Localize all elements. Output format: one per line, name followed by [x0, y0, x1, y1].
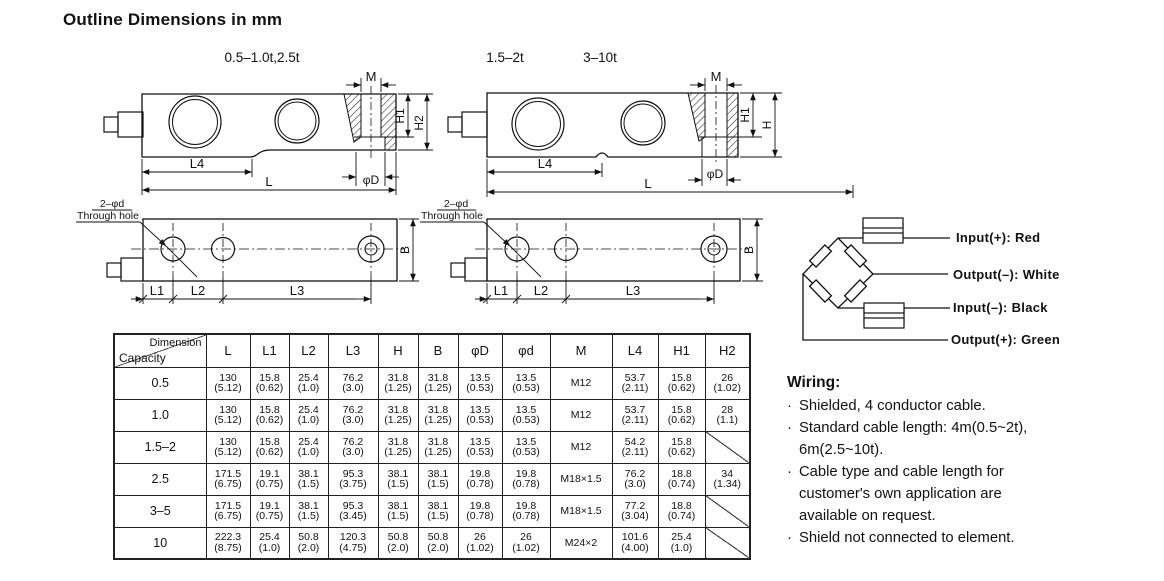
thread-cell: M18×1.5: [550, 495, 612, 527]
wheatstone-diamond: [803, 238, 873, 308]
dim-cell: 31.8(1.25): [378, 431, 418, 463]
dim-cell: 18.8(0.74): [658, 463, 705, 495]
wire-label-input-pos: Input(+): Red: [956, 230, 1040, 245]
dim-label-l2: L2: [534, 283, 548, 298]
dim-cell: 26(1.02): [502, 527, 550, 559]
strain-gauge: [845, 245, 867, 267]
col-header-H: H: [378, 334, 418, 367]
bullet-dot: ·: [787, 417, 799, 439]
dim-cell-na: [705, 527, 750, 559]
dim-cell: 76.2(3.0): [328, 367, 378, 399]
dim-label-l: L: [644, 176, 651, 191]
flexure-hole: [275, 99, 319, 143]
dim-cell: 31.8(1.25): [418, 431, 458, 463]
callout-2-phid: 2–φd: [444, 198, 468, 210]
cable-tip: [451, 263, 465, 277]
dim-label-l1: L1: [494, 283, 508, 298]
cable-tip: [448, 117, 462, 132]
dim-label-l: L: [265, 174, 272, 189]
dim-label-h1: H1: [393, 108, 407, 124]
variant-label-large: 3–10t: [583, 50, 617, 65]
dim-cell: 15.8(0.62): [658, 367, 705, 399]
dim-cell: 50.8(2.0): [289, 527, 328, 559]
wiring-note: ·Cable type and cable length for custome…: [787, 461, 1045, 527]
flexure-hole: [169, 96, 221, 148]
col-header-L3: L3: [328, 334, 378, 367]
dim-cell: 19.8(0.78): [458, 463, 502, 495]
dim-cell: 19.8(0.78): [502, 495, 550, 527]
dim-label-l2: L2: [191, 283, 205, 298]
dim-label-b: B: [742, 246, 756, 254]
bridge-circuit: Input(+): Red Output(–): White Input(–):…: [803, 218, 1060, 347]
dim-cell: 222.3(8.75): [206, 527, 250, 559]
callout-through-hole: Through hole: [77, 210, 139, 222]
col-header-H1: H1: [658, 334, 705, 367]
datasheet-page: Outline Dimensions in mm 0.5–1.0t,2.5t 1…: [0, 0, 1164, 581]
callout-2-phid: 2–φd: [100, 198, 124, 210]
thread-cell: M18×1.5: [550, 463, 612, 495]
wiring-notes: Wiring: ·Shielded, 4 conductor cable. ·S…: [787, 374, 1045, 549]
dim-cell: 25.4(1.0): [289, 367, 328, 399]
section-hatch: [727, 93, 738, 157]
dim-cell: 38.1(1.5): [378, 463, 418, 495]
bullet-dot: ·: [787, 395, 799, 417]
dim-label-m: M: [711, 69, 722, 84]
dim-label-m: M: [366, 69, 377, 84]
dim-cell: 25.4(1.0): [289, 431, 328, 463]
thread-cell: M12: [550, 399, 612, 431]
cable-connector: [462, 112, 487, 137]
dim-cell: 31.8(1.25): [418, 367, 458, 399]
bullet-dot: ·: [787, 527, 799, 549]
dim-cell: 54.2(2.11): [612, 431, 658, 463]
top-view-large: 2–φd Through hole B L1 L2: [420, 198, 763, 304]
dim-cell: 13.5(0.53): [502, 399, 550, 431]
dim-cell: 13.5(0.53): [458, 431, 502, 463]
thread-cell: M12: [550, 431, 612, 463]
dim-cell: 38.1(1.5): [418, 495, 458, 527]
dim-cell: 34(1.34): [705, 463, 750, 495]
dim-label-phid: φD: [363, 173, 380, 187]
cable-tip: [104, 117, 118, 132]
table-header-row: Dimension Capacity L L1 L2 L3 H B φD φd …: [114, 334, 750, 367]
dim-cell: 130(5.12): [206, 367, 250, 399]
load-cell-body-top: [487, 219, 740, 281]
capacity-cell: 3–5: [114, 495, 206, 527]
col-header-L4: L4: [612, 334, 658, 367]
col-header-L1: L1: [250, 334, 289, 367]
dim-label-l1: L1: [150, 283, 164, 298]
dim-cell: 130(5.12): [206, 399, 250, 431]
col-header-L: L: [206, 334, 250, 367]
cable-connector: [118, 112, 143, 137]
dim-cell: 31.8(1.25): [418, 399, 458, 431]
dim-cell: 130(5.12): [206, 431, 250, 463]
dim-cell: 19.8(0.78): [458, 495, 502, 527]
dim-cell: 31.8(1.25): [378, 367, 418, 399]
capacity-cell: 10: [114, 527, 206, 559]
capacity-cell: 1.0: [114, 399, 206, 431]
dim-label-l4: L4: [190, 156, 204, 171]
dim-cell: 25.4(1.0): [289, 399, 328, 431]
dim-cell: 26(1.02): [458, 527, 502, 559]
wiring-note: ·Shield not connected to element.: [787, 527, 1045, 549]
dim-cell: 95.3(3.45): [328, 495, 378, 527]
dim-cell: 171.5(6.75): [206, 495, 250, 527]
wiring-heading: Wiring:: [787, 374, 1045, 392]
load-cell-body-top: [143, 219, 397, 281]
dim-label-h2: H2: [412, 115, 426, 131]
dim-cell: 50.8(2.0): [378, 527, 418, 559]
strain-gauge: [810, 245, 832, 267]
outline-drawings: 0.5–1.0t,2.5t 1.5–2t 3–10t M: [0, 0, 1164, 352]
flexure-hole: [512, 98, 564, 150]
corner-capacity-label: Capacity: [119, 351, 166, 365]
dim-label-l3: L3: [290, 283, 304, 298]
side-view-large: M H1 H L4 L: [448, 69, 853, 198]
variant-label-medium: 1.5–2t: [486, 50, 524, 65]
flexure-hole: [621, 101, 665, 145]
dim-cell: 15.8(0.62): [250, 431, 289, 463]
section-hatch: [344, 94, 361, 142]
dim-label-b: B: [398, 246, 412, 254]
dim-label-phid: φD: [707, 167, 724, 181]
dim-cell: 76.2(3.0): [328, 431, 378, 463]
dim-label-l4: L4: [538, 156, 552, 171]
dim-cell: 50.8(2.0): [418, 527, 458, 559]
dim-label-l3: L3: [626, 283, 640, 298]
dim-cell-na: [705, 431, 750, 463]
dim-cell: 15.8(0.62): [250, 399, 289, 431]
col-header-B: B: [418, 334, 458, 367]
dim-label-h1: H1: [738, 107, 752, 123]
wire-label-output-neg: Output(–): White: [953, 267, 1060, 282]
variant-label-small: 0.5–1.0t,2.5t: [224, 50, 299, 65]
dim-cell: 38.1(1.5): [289, 495, 328, 527]
dim-label-h: H: [760, 121, 774, 130]
dim-cell: 95.3(3.75): [328, 463, 378, 495]
strain-gauge: [810, 280, 832, 302]
wiring-note: ·Shielded, 4 conductor cable.: [787, 395, 1045, 417]
col-header-H2: H2: [705, 334, 750, 367]
dim-cell: 13.5(0.53): [458, 367, 502, 399]
dim-cell: 15.8(0.62): [250, 367, 289, 399]
dim-cell: 19.1(0.75): [250, 495, 289, 527]
dim-cell: 13.5(0.53): [502, 367, 550, 399]
dim-cell: 25.4(1.0): [658, 527, 705, 559]
dim-cell: 101.6(4.00): [612, 527, 658, 559]
dim-cell: 15.8(0.62): [658, 431, 705, 463]
dim-cell: 19.8(0.78): [502, 463, 550, 495]
capacity-cell: 2.5: [114, 463, 206, 495]
capacity-cell: 0.5: [114, 367, 206, 399]
col-header-phiD: φD: [458, 334, 502, 367]
wire-label-input-neg: Input(–): Black: [953, 300, 1048, 315]
thread-cell: M12: [550, 367, 612, 399]
dim-cell: 13.5(0.53): [458, 399, 502, 431]
corner-dimension-label: Dimension: [150, 337, 202, 349]
compensation-resistors-top: [863, 218, 903, 243]
dim-cell: 76.2(3.0): [328, 399, 378, 431]
capacity-cell: 1.5–2: [114, 431, 206, 463]
dim-cell: 38.1(1.5): [289, 463, 328, 495]
dim-cell: 38.1(1.5): [378, 495, 418, 527]
table-row: 3–5 171.5(6.75) 19.1(0.75) 38.1(1.5) 95.…: [114, 495, 750, 527]
table-row: 1.0 130(5.12) 15.8(0.62) 25.4(1.0) 76.2(…: [114, 399, 750, 431]
dim-cell: 31.8(1.25): [378, 399, 418, 431]
dim-cell: 18.8(0.74): [658, 495, 705, 527]
table-row: 0.5 130(5.12) 15.8(0.62) 25.4(1.0) 76.2(…: [114, 367, 750, 399]
wire-label-output-pos: Output(+): Green: [951, 332, 1060, 347]
dim-cell: 15.8(0.62): [658, 399, 705, 431]
thread-cell: M24×2: [550, 527, 612, 559]
table-row: 10 222.3(8.75) 25.4(1.0) 50.8(2.0) 120.3…: [114, 527, 750, 559]
dim-cell: 25.4(1.0): [250, 527, 289, 559]
table-row: 2.5 171.5(6.75) 19.1(0.75) 38.1(1.5) 95.…: [114, 463, 750, 495]
dimension-table: Dimension Capacity L L1 L2 L3 H B φD φd …: [113, 333, 751, 560]
callout-through-hole: Through hole: [421, 210, 483, 222]
cable-connector: [465, 258, 487, 281]
bullet-dot: ·: [787, 461, 799, 483]
dim-cell: 28(1.1): [705, 399, 750, 431]
section-hatch: [688, 93, 705, 141]
dim-cell: 38.1(1.5): [418, 463, 458, 495]
col-header-L2: L2: [289, 334, 328, 367]
dim-cell: 19.1(0.75): [250, 463, 289, 495]
top-view-small: 2–φd Through hole B L1 L2: [76, 198, 419, 304]
table-row: 1.5–2 130(5.12) 15.8(0.62) 25.4(1.0) 76.…: [114, 431, 750, 463]
dim-cell: 120.3(4.75): [328, 527, 378, 559]
compensation-resistors-bottom: [864, 303, 904, 328]
col-header-phid: φd: [502, 334, 550, 367]
dim-cell: 76.2(3.0): [612, 463, 658, 495]
dim-cell: 53.7(2.11): [612, 367, 658, 399]
dim-cell: 77.2(3.04): [612, 495, 658, 527]
dim-cell: 171.5(6.75): [206, 463, 250, 495]
dim-cell: 53.7(2.11): [612, 399, 658, 431]
dim-cell: 13.5(0.53): [502, 431, 550, 463]
corner-cell: Dimension Capacity: [114, 334, 206, 367]
dim-cell: 26(1.02): [705, 367, 750, 399]
dim-cell-na: [705, 495, 750, 527]
strain-gauge: [845, 280, 867, 302]
cable-connector: [121, 258, 143, 281]
col-header-M: M: [550, 334, 612, 367]
side-view-small: M H1 H2 L4 L: [104, 69, 433, 195]
wiring-note: ·Standard cable length: 4m(0.5~2t), 6m(2…: [787, 417, 1045, 461]
cable-tip: [107, 263, 121, 277]
